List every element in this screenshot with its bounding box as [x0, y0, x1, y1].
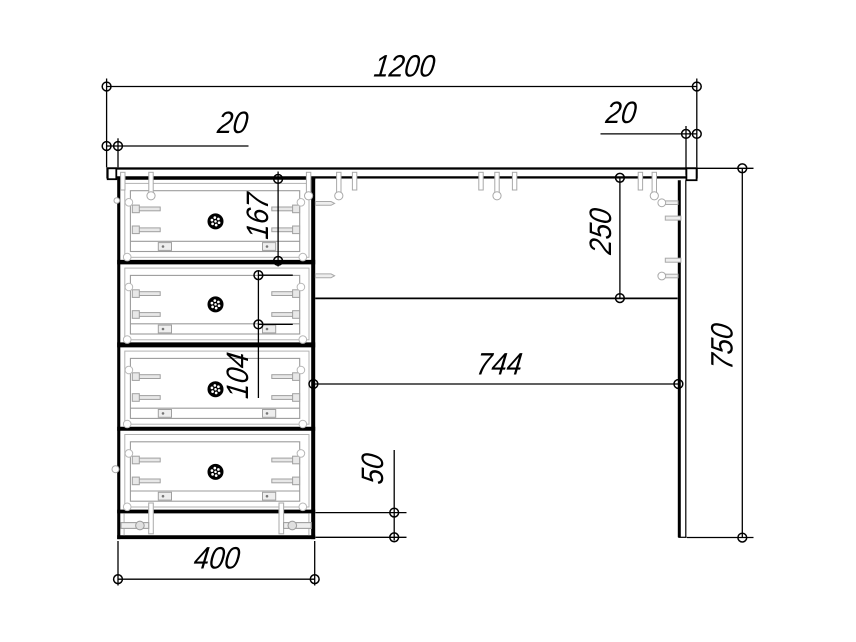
svg-text:20: 20 [603, 95, 639, 130]
svg-text:104: 104 [220, 350, 255, 400]
svg-text:50: 50 [356, 451, 391, 486]
svg-text:167: 167 [241, 189, 276, 240]
svg-text:750: 750 [705, 321, 740, 371]
svg-text:744: 744 [475, 347, 525, 382]
svg-text:20: 20 [215, 105, 251, 140]
svg-text:400: 400 [192, 541, 242, 576]
svg-text:250: 250 [583, 206, 618, 257]
svg-text:1200: 1200 [372, 49, 438, 84]
